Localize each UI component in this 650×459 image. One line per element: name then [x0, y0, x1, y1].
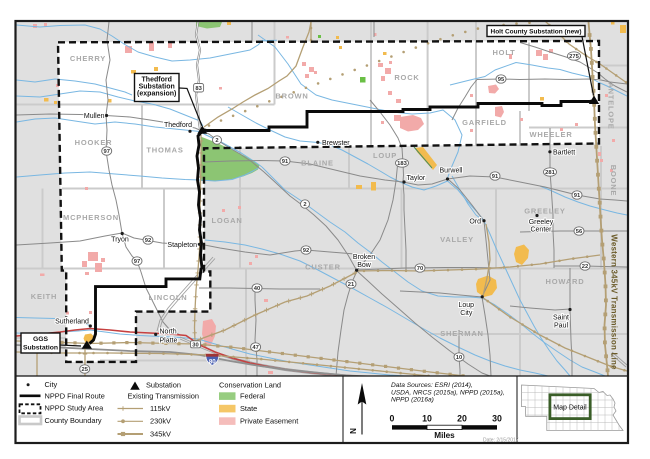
- svg-text:Date: 2/15/2017: Date: 2/15/2017: [483, 438, 519, 444]
- svg-text:(expansion): (expansion): [137, 90, 176, 97]
- svg-text:HOWARD: HOWARD: [546, 277, 585, 286]
- svg-text:VALLEY: VALLEY: [440, 235, 474, 244]
- svg-text:Bartlett: Bartlett: [553, 150, 575, 157]
- svg-text:GGS: GGS: [33, 336, 49, 343]
- svg-text:Data Sources: ESRI (2014),: Data Sources: ESRI (2014),: [391, 382, 473, 389]
- svg-text:30: 30: [192, 342, 198, 348]
- svg-text:LINCOLN: LINCOLN: [149, 293, 188, 302]
- svg-text:30: 30: [492, 414, 502, 424]
- svg-text:Substation: Substation: [23, 345, 58, 352]
- svg-text:NPPD Final Route: NPPD Final Route: [45, 391, 105, 400]
- svg-text:BOONE: BOONE: [609, 165, 618, 197]
- svg-text:North: North: [160, 329, 177, 336]
- svg-text:20: 20: [457, 414, 467, 424]
- svg-text:91: 91: [574, 193, 581, 199]
- svg-text:97: 97: [134, 259, 140, 265]
- svg-text:CUSTER: CUSTER: [305, 263, 341, 272]
- svg-text:92: 92: [303, 248, 309, 254]
- svg-text:Sutherland: Sutherland: [55, 319, 89, 326]
- svg-text:Federal: Federal: [240, 391, 265, 400]
- svg-text:183: 183: [397, 161, 407, 167]
- svg-text:LOGAN: LOGAN: [211, 216, 242, 225]
- svg-text:Substation: Substation: [139, 83, 175, 90]
- svg-text:Greeley: Greeley: [529, 219, 554, 226]
- svg-text:Burwell: Burwell: [440, 168, 463, 175]
- svg-text:70: 70: [417, 266, 423, 272]
- svg-text:SHERMAN: SHERMAN: [440, 329, 484, 338]
- svg-text:10: 10: [422, 414, 432, 424]
- svg-text:CHERRY: CHERRY: [70, 54, 106, 63]
- svg-text:Thedford: Thedford: [164, 122, 192, 129]
- svg-text:Tryon: Tryon: [111, 237, 129, 244]
- svg-text:22: 22: [582, 264, 588, 270]
- svg-text:Taylor: Taylor: [407, 175, 426, 182]
- svg-text:25: 25: [81, 367, 88, 373]
- svg-text:State: State: [240, 404, 257, 413]
- svg-text:281: 281: [545, 170, 555, 176]
- svg-text:THOMAS: THOMAS: [146, 146, 183, 155]
- svg-text:ROCK: ROCK: [394, 73, 419, 82]
- svg-text:91: 91: [282, 159, 289, 165]
- svg-text:Map Detail: Map Detail: [553, 405, 587, 412]
- svg-text:91: 91: [492, 174, 499, 180]
- svg-text:Holt County Substation (new): Holt County Substation (new): [491, 29, 582, 36]
- svg-text:115kV: 115kV: [150, 404, 170, 413]
- svg-text:Bow: Bow: [357, 262, 372, 269]
- svg-text:KEITH: KEITH: [31, 292, 58, 301]
- svg-text:10: 10: [456, 355, 462, 361]
- svg-text:GARFIELD: GARFIELD: [462, 118, 507, 127]
- svg-text:80: 80: [209, 358, 216, 365]
- svg-text:BROWN: BROWN: [275, 92, 308, 101]
- svg-text:City: City: [460, 310, 473, 317]
- svg-text:95: 95: [498, 77, 505, 83]
- svg-text:Ord: Ord: [469, 219, 481, 226]
- svg-text:Private Easement: Private Easement: [240, 416, 298, 425]
- svg-text:LOUP: LOUP: [373, 151, 397, 160]
- svg-text:275: 275: [569, 54, 579, 60]
- svg-text:Western 345kV Transmission Lin: Western 345kV Transmission Line: [610, 234, 619, 370]
- svg-text:97: 97: [103, 149, 109, 155]
- svg-text:Saint: Saint: [553, 315, 569, 322]
- svg-text:USDA, NRCS (2015a), NPPD (2015: USDA, NRCS (2015a), NPPD (2015a),: [391, 389, 505, 396]
- svg-text:92: 92: [145, 238, 151, 244]
- svg-text:Substation: Substation: [146, 381, 181, 390]
- svg-text:HOOKER: HOOKER: [75, 138, 113, 147]
- svg-text:HOLT: HOLT: [492, 48, 515, 57]
- svg-text:MCPHERSON: MCPHERSON: [63, 213, 119, 222]
- svg-text:Platte: Platte: [160, 338, 178, 345]
- svg-text:40: 40: [254, 286, 260, 292]
- svg-text:Stapleton: Stapleton: [167, 242, 197, 249]
- svg-text:WHEELER: WHEELER: [529, 130, 572, 139]
- svg-text:Mullen: Mullen: [84, 113, 105, 120]
- svg-text:83: 83: [195, 86, 202, 92]
- svg-text:BLAINE: BLAINE: [301, 159, 334, 168]
- svg-text:ANTELOPE: ANTELOPE: [607, 82, 616, 129]
- svg-text:47: 47: [252, 345, 258, 351]
- svg-text:0: 0: [390, 414, 395, 424]
- svg-text:2: 2: [303, 202, 306, 208]
- svg-text:2: 2: [215, 138, 218, 144]
- svg-text:Thedford: Thedford: [142, 76, 172, 83]
- svg-text:Existing Transmission: Existing Transmission: [128, 391, 199, 400]
- svg-text:Center: Center: [530, 227, 552, 234]
- svg-text:345kV: 345kV: [150, 429, 171, 438]
- svg-text:230kV: 230kV: [150, 416, 171, 425]
- svg-text:Loup: Loup: [459, 302, 475, 309]
- svg-text:GREELEY: GREELEY: [524, 207, 565, 216]
- svg-text:NPPD (2016a): NPPD (2016a): [391, 397, 434, 404]
- svg-text:Broken: Broken: [353, 254, 375, 261]
- svg-text:Conservation Land: Conservation Land: [219, 381, 281, 390]
- svg-text:56: 56: [576, 229, 583, 235]
- svg-text:Paul: Paul: [554, 323, 568, 330]
- svg-text:21: 21: [348, 282, 355, 288]
- svg-text:Miles: Miles: [434, 431, 455, 440]
- svg-text:N: N: [349, 428, 358, 434]
- svg-text:County Boundary: County Boundary: [45, 416, 102, 425]
- svg-text:Brewster: Brewster: [322, 140, 350, 147]
- svg-text:NPPD Study Area: NPPD Study Area: [45, 404, 105, 413]
- svg-text:City: City: [45, 380, 58, 389]
